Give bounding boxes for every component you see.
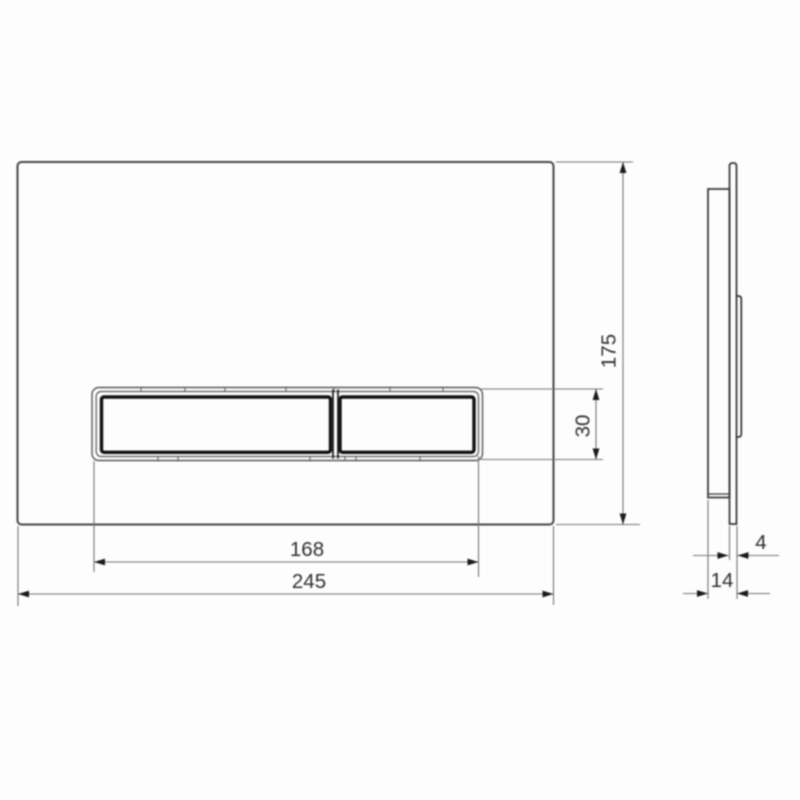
svg-text:14: 14: [711, 569, 734, 592]
svg-text:245: 245: [292, 570, 326, 593]
svg-text:168: 168: [290, 538, 324, 561]
svg-text:175: 175: [598, 334, 621, 368]
svg-text:30: 30: [572, 415, 595, 438]
svg-text:4: 4: [755, 531, 766, 554]
